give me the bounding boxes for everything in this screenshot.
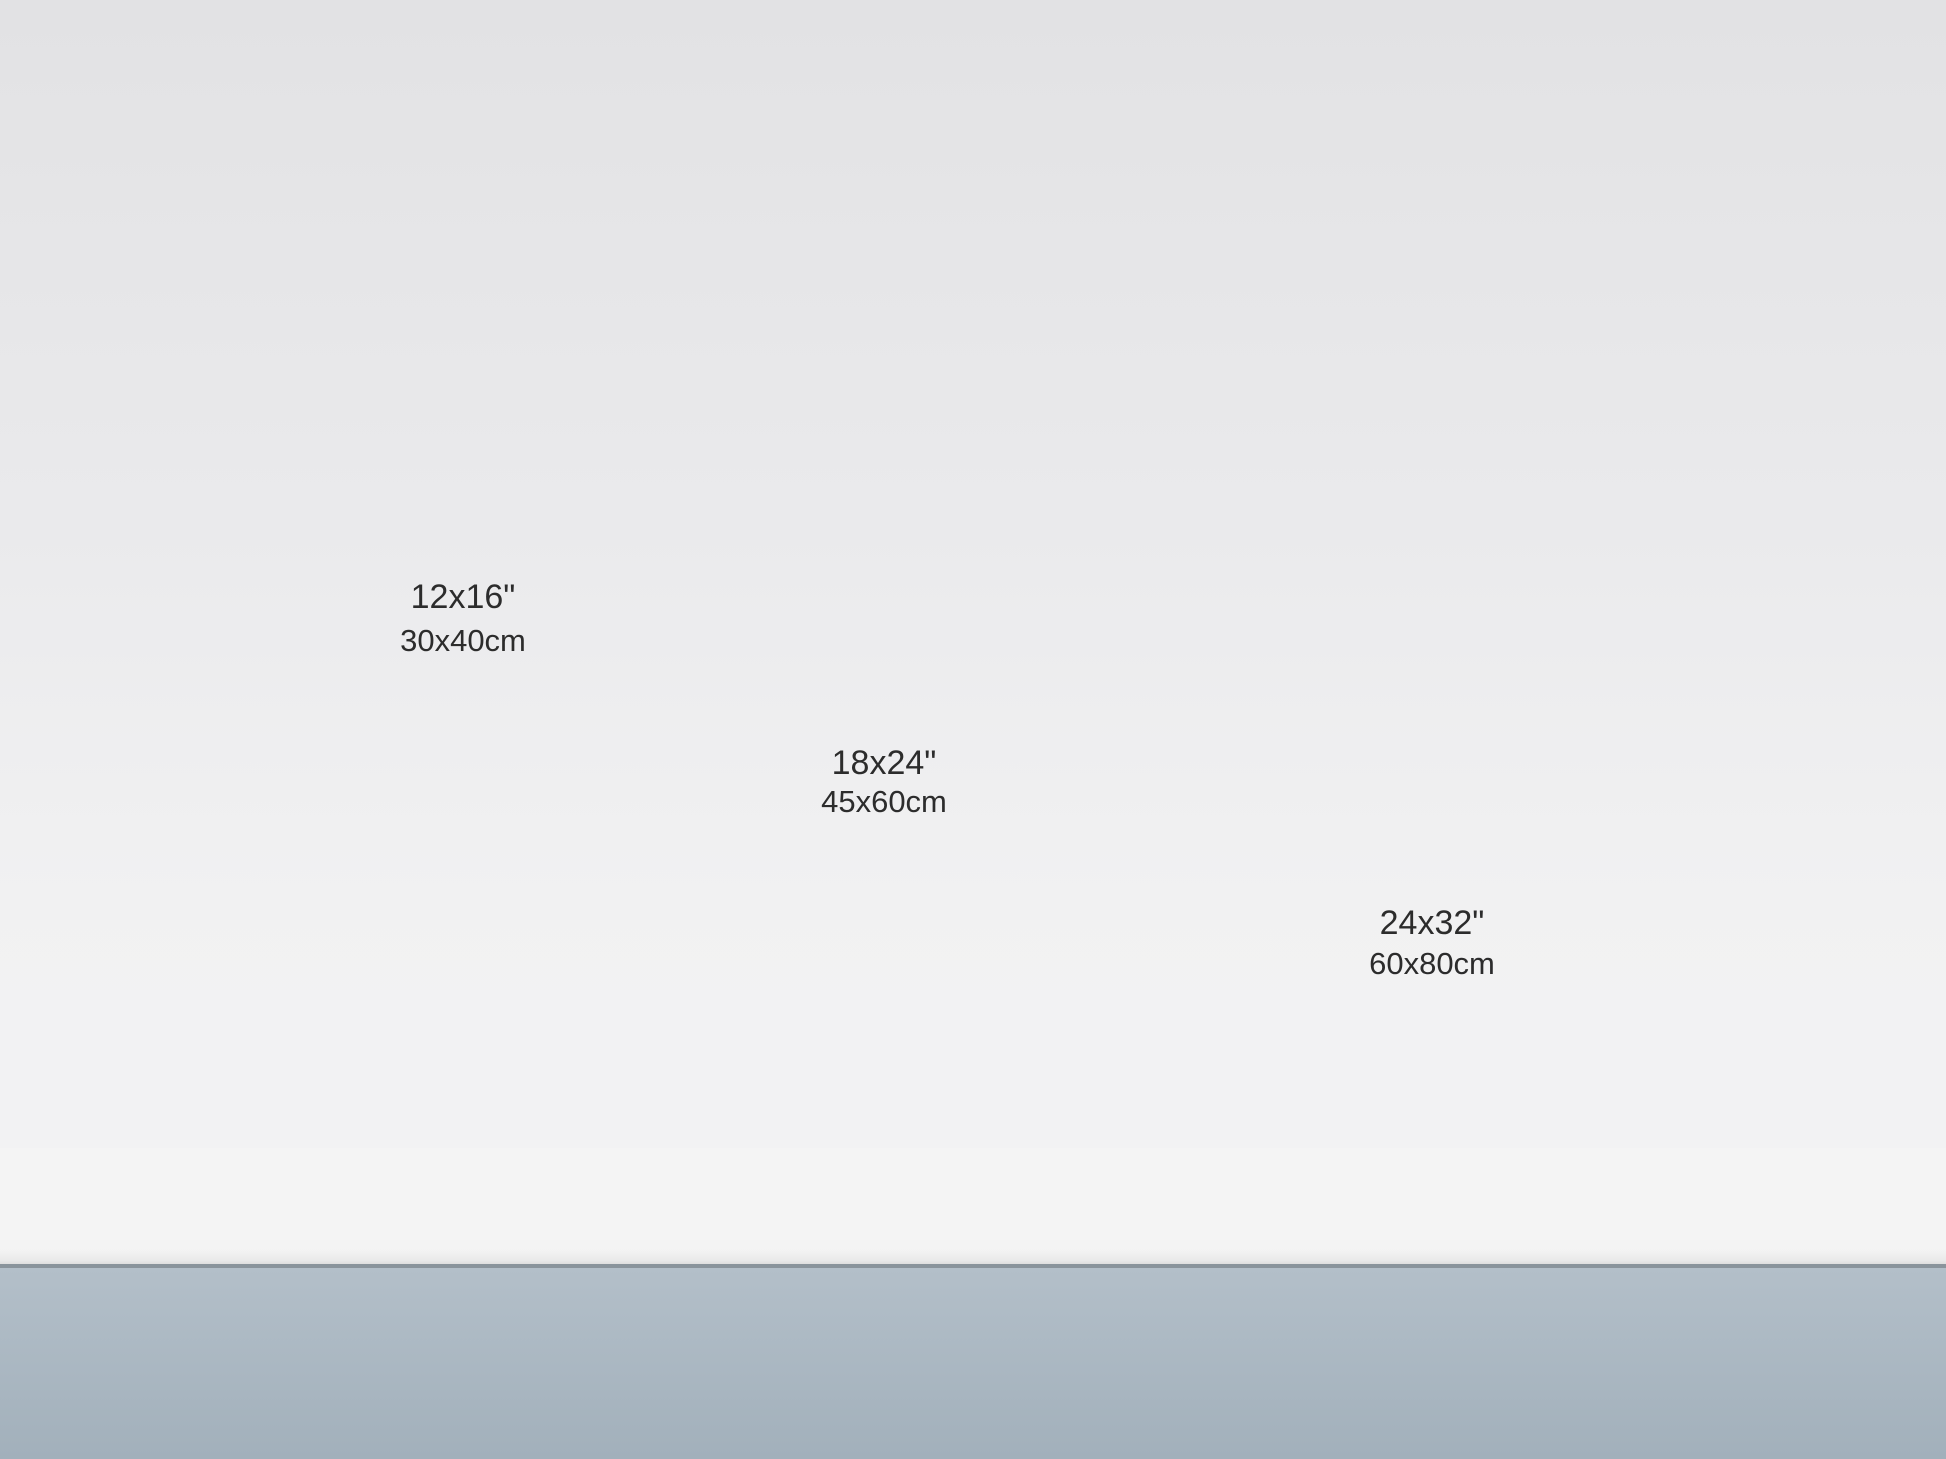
svg-text:30x40cm: 30x40cm [400, 623, 526, 658]
svg-text:18x24": 18x24" [832, 744, 937, 782]
svg-text:12x16": 12x16" [411, 578, 516, 616]
svg-text:45x60cm: 45x60cm [821, 784, 947, 819]
svg-text:60x80cm: 60x80cm [1369, 946, 1495, 981]
svg-text:24x32": 24x32" [1380, 904, 1485, 942]
